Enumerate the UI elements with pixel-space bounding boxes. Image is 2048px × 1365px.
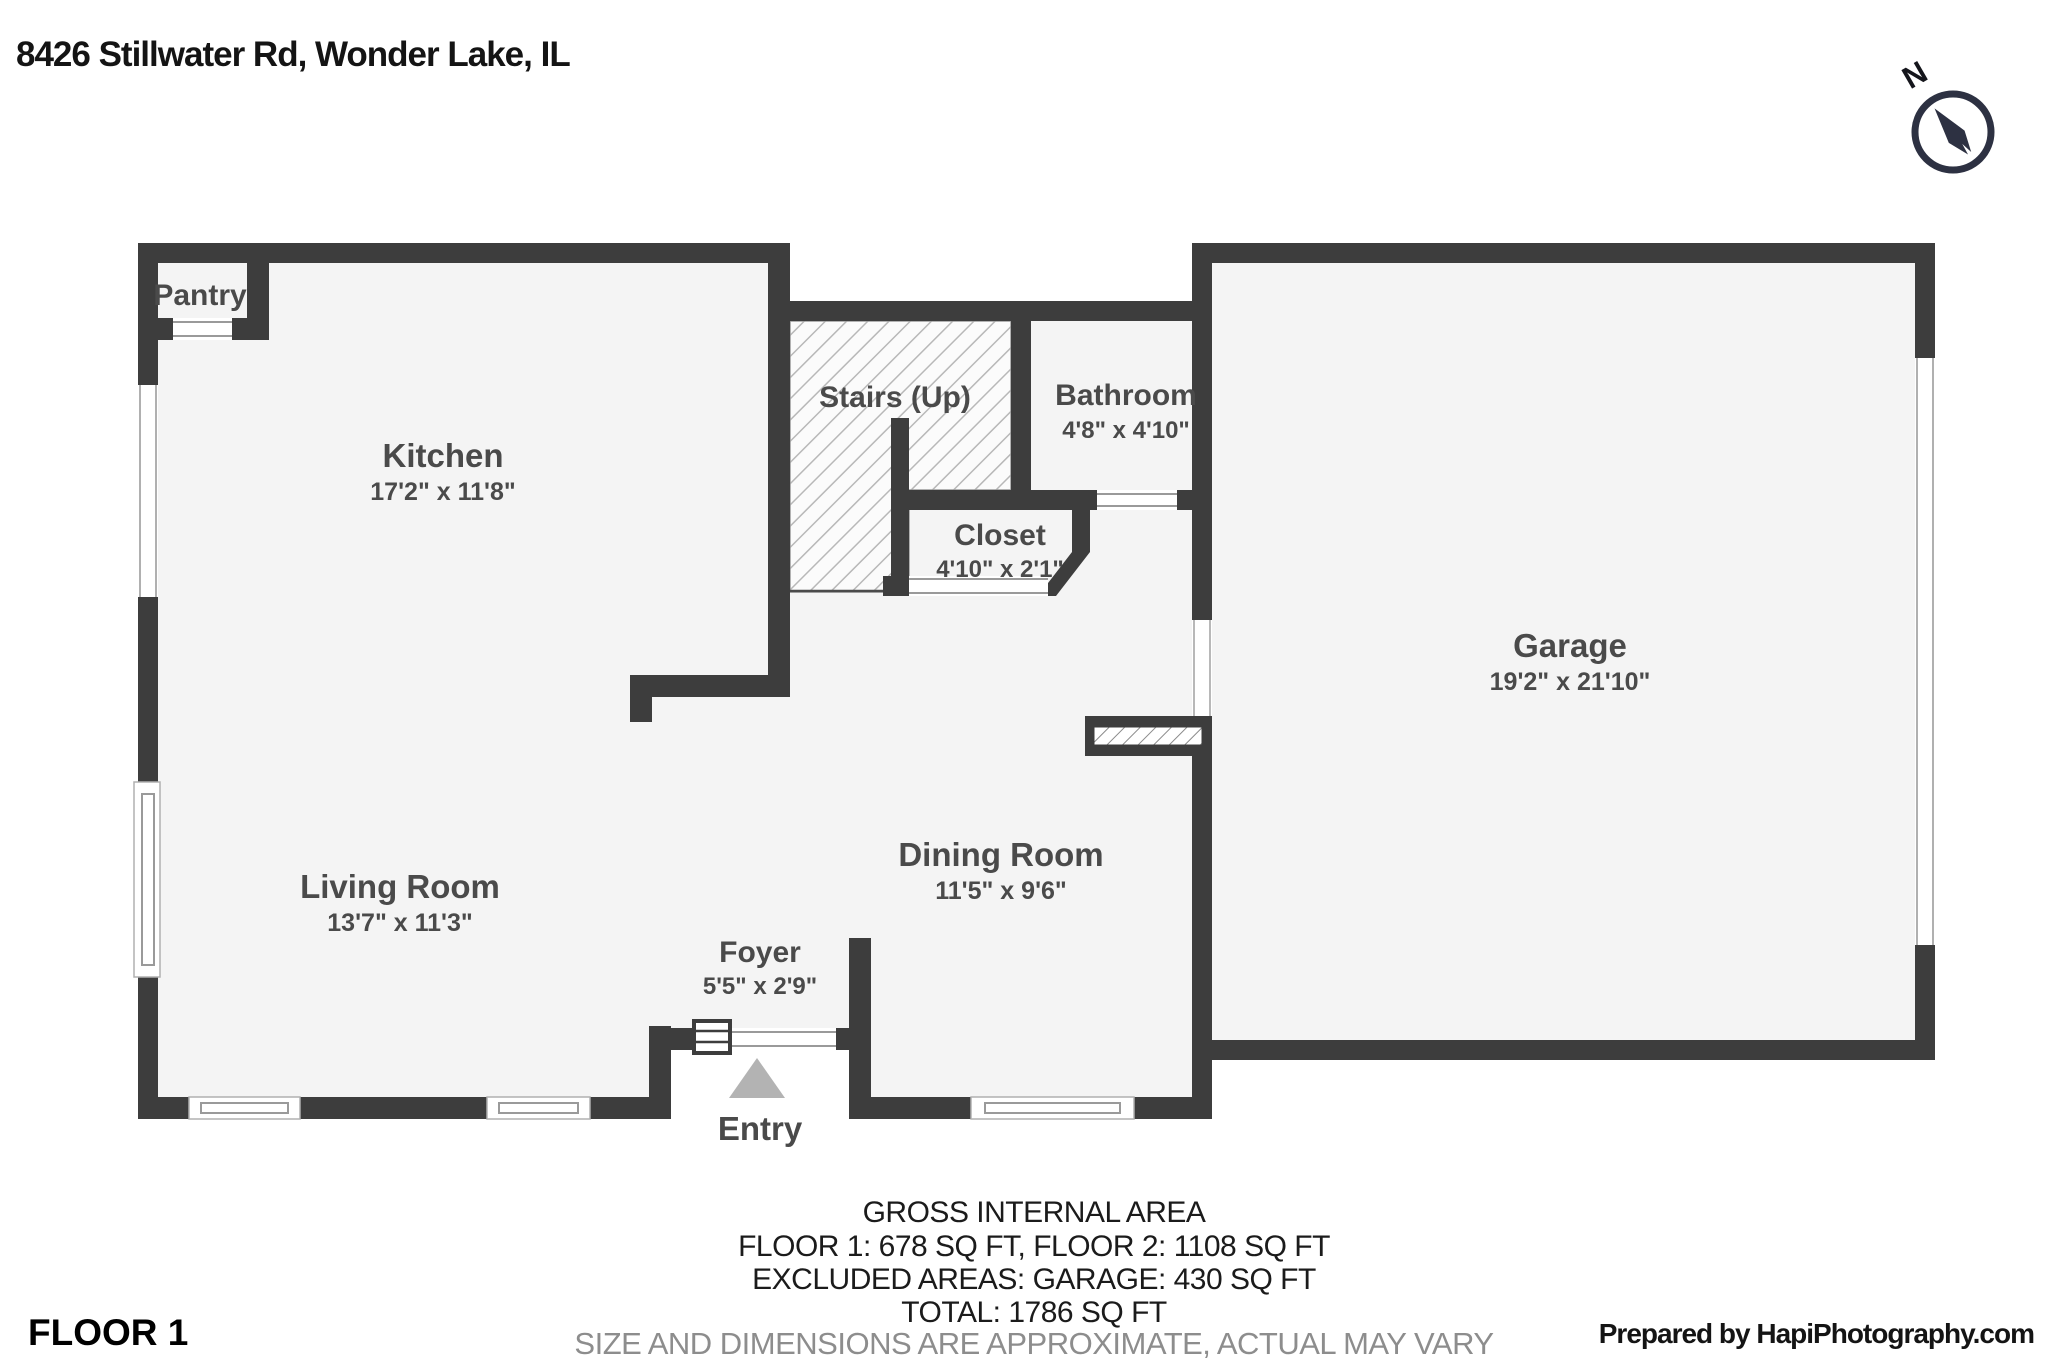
garage-dims: 19'2" x 21'10" <box>1490 668 1651 696</box>
floor-plan-canvas: Pantry Kitchen 17'2" x 11'8" Stairs (Up)… <box>0 0 2048 1365</box>
stairs-label: Stairs (Up) <box>819 381 971 414</box>
garage-steps-symbol <box>1085 716 1212 756</box>
bathroom-door <box>1097 490 1177 510</box>
kitchen-window <box>138 385 158 597</box>
foyer-label: Foyer <box>719 936 801 969</box>
kitchen-label: Kitchen <box>382 437 503 474</box>
summary-total: TOTAL: 1786 SQ FT <box>901 1296 1167 1329</box>
bathroom-label: Bathroom <box>1055 379 1197 412</box>
garage-side-opening <box>1192 620 1212 716</box>
living-room-bottom-window-2 <box>487 1097 590 1119</box>
closet-label: Closet <box>954 519 1046 552</box>
garage-door <box>1915 358 1935 945</box>
entry-label: Entry <box>718 1110 803 1147</box>
living-room-bottom-window-1 <box>189 1097 300 1119</box>
kitchen-dims: 17'2" x 11'8" <box>370 478 515 506</box>
summary-excluded: EXCLUDED AREAS: GARAGE: 430 SQ FT <box>752 1263 1316 1296</box>
top-notch-outside <box>790 235 1192 301</box>
bathroom-dims: 4'8" x 4'10" <box>1062 417 1190 444</box>
dining-room-window <box>971 1097 1134 1119</box>
entry-door-leaf-icon <box>694 1021 730 1053</box>
living-room-side-window <box>134 782 160 977</box>
floor-areas <box>140 235 1933 1144</box>
foyer-dims: 5'5" x 2'9" <box>703 973 817 1000</box>
summary-heading: GROSS INTERNAL AREA <box>863 1196 1206 1229</box>
summary-disclaimer: SIZE AND DIMENSIONS ARE APPROXIMATE, ACT… <box>574 1326 1493 1361</box>
dining-room-dims: 11'5" x 9'6" <box>935 877 1067 905</box>
pantry-door <box>173 318 232 340</box>
pantry-label: Pantry <box>153 279 247 312</box>
summary-floors: FLOOR 1: 678 SQ FT, FLOOR 2: 1108 SQ FT <box>738 1230 1330 1263</box>
living-room-label: Living Room <box>300 868 500 905</box>
page-title: 8426 Stillwater Rd, Wonder Lake, IL <box>16 35 570 74</box>
dining-room-label: Dining Room <box>898 836 1103 873</box>
closet-dims: 4'10" x 2'1" <box>936 556 1064 583</box>
living-room-dims: 13'7" x 11'3" <box>327 909 472 937</box>
garage-label: Garage <box>1513 627 1627 664</box>
floor-number-label: FLOOR 1 <box>28 1312 188 1353</box>
credit-label: Prepared by HapiPhotography.com <box>1599 1318 2034 1349</box>
floor-plan-page: Pantry Kitchen 17'2" x 11'8" Stairs (Up)… <box>0 0 2048 1365</box>
